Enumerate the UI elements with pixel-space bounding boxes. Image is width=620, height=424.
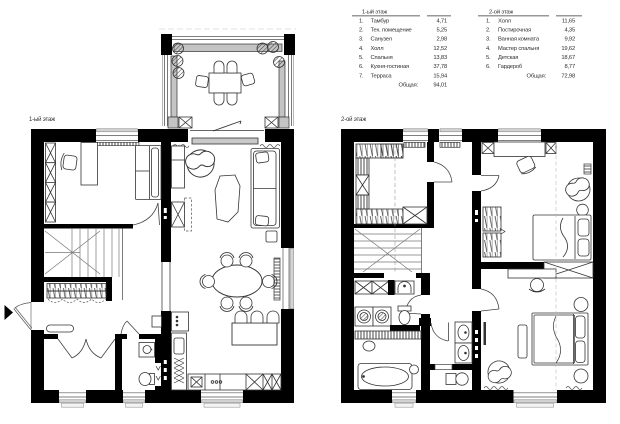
svg-text:12,52: 12,52 xyxy=(433,46,447,52)
svg-text:2-ой этаж: 2-ой этаж xyxy=(489,9,513,16)
svg-text:3.: 3. xyxy=(486,37,491,43)
svg-text:Холл: Холл xyxy=(498,18,511,24)
svg-text:Гардероб: Гардероб xyxy=(498,64,523,70)
svg-text:Холл: Холл xyxy=(371,46,384,52)
svg-text:Спальня: Спальня xyxy=(371,55,393,61)
svg-text:Общая:: Общая: xyxy=(399,83,419,89)
svg-text:1.: 1. xyxy=(359,18,364,24)
svg-text:Детская: Детская xyxy=(498,55,518,61)
svg-text:13,83: 13,83 xyxy=(433,55,447,61)
svg-text:Ванная комната: Ванная комната xyxy=(498,37,540,43)
svg-text:1.: 1. xyxy=(486,18,491,24)
svg-text:9,92: 9,92 xyxy=(564,37,575,43)
svg-text:2-ой этаж: 2-ой этаж xyxy=(341,116,366,123)
svg-text:4.: 4. xyxy=(486,46,491,52)
svg-text:Тех. помещение: Тех. помещение xyxy=(371,27,412,33)
svg-text:Общая:: Общая: xyxy=(527,73,547,79)
svg-text:Постирочная: Постирочная xyxy=(498,27,531,33)
svg-text:5.: 5. xyxy=(486,55,491,61)
svg-text:11,65: 11,65 xyxy=(562,18,575,24)
svg-text:2.: 2. xyxy=(486,27,491,33)
svg-text:15,94: 15,94 xyxy=(433,73,448,79)
svg-text:2,98: 2,98 xyxy=(436,37,447,43)
svg-text:37,78: 37,78 xyxy=(433,64,447,70)
svg-text:1-ый этаж: 1-ый этаж xyxy=(362,9,387,16)
svg-text:6.: 6. xyxy=(486,64,491,70)
svg-text:Мастер спальня: Мастер спальня xyxy=(498,46,539,52)
svg-text:4,35: 4,35 xyxy=(564,27,575,33)
svg-text:19,62: 19,62 xyxy=(561,46,575,52)
svg-text:Кухня-гостиная: Кухня-гостиная xyxy=(371,64,410,70)
svg-text:5,25: 5,25 xyxy=(436,27,447,33)
svg-text:4,71: 4,71 xyxy=(436,18,447,24)
svg-text:Терраса: Терраса xyxy=(371,73,393,79)
svg-text:18,67: 18,67 xyxy=(561,55,575,61)
svg-text:1-ый этаж: 1-ый этаж xyxy=(29,116,55,123)
svg-text:3.: 3. xyxy=(359,37,364,43)
svg-text:94,01: 94,01 xyxy=(433,83,447,89)
svg-text:7.: 7. xyxy=(359,73,364,79)
svg-text:5.: 5. xyxy=(359,55,364,61)
svg-text:2.: 2. xyxy=(359,27,364,33)
svg-text:72,98: 72,98 xyxy=(561,73,575,79)
svg-text:Санузел: Санузел xyxy=(371,37,392,43)
svg-text:8,77: 8,77 xyxy=(564,64,575,70)
svg-text:4.: 4. xyxy=(359,46,364,52)
svg-text:6.: 6. xyxy=(359,64,364,70)
svg-text:Тамбур: Тамбур xyxy=(371,18,390,24)
